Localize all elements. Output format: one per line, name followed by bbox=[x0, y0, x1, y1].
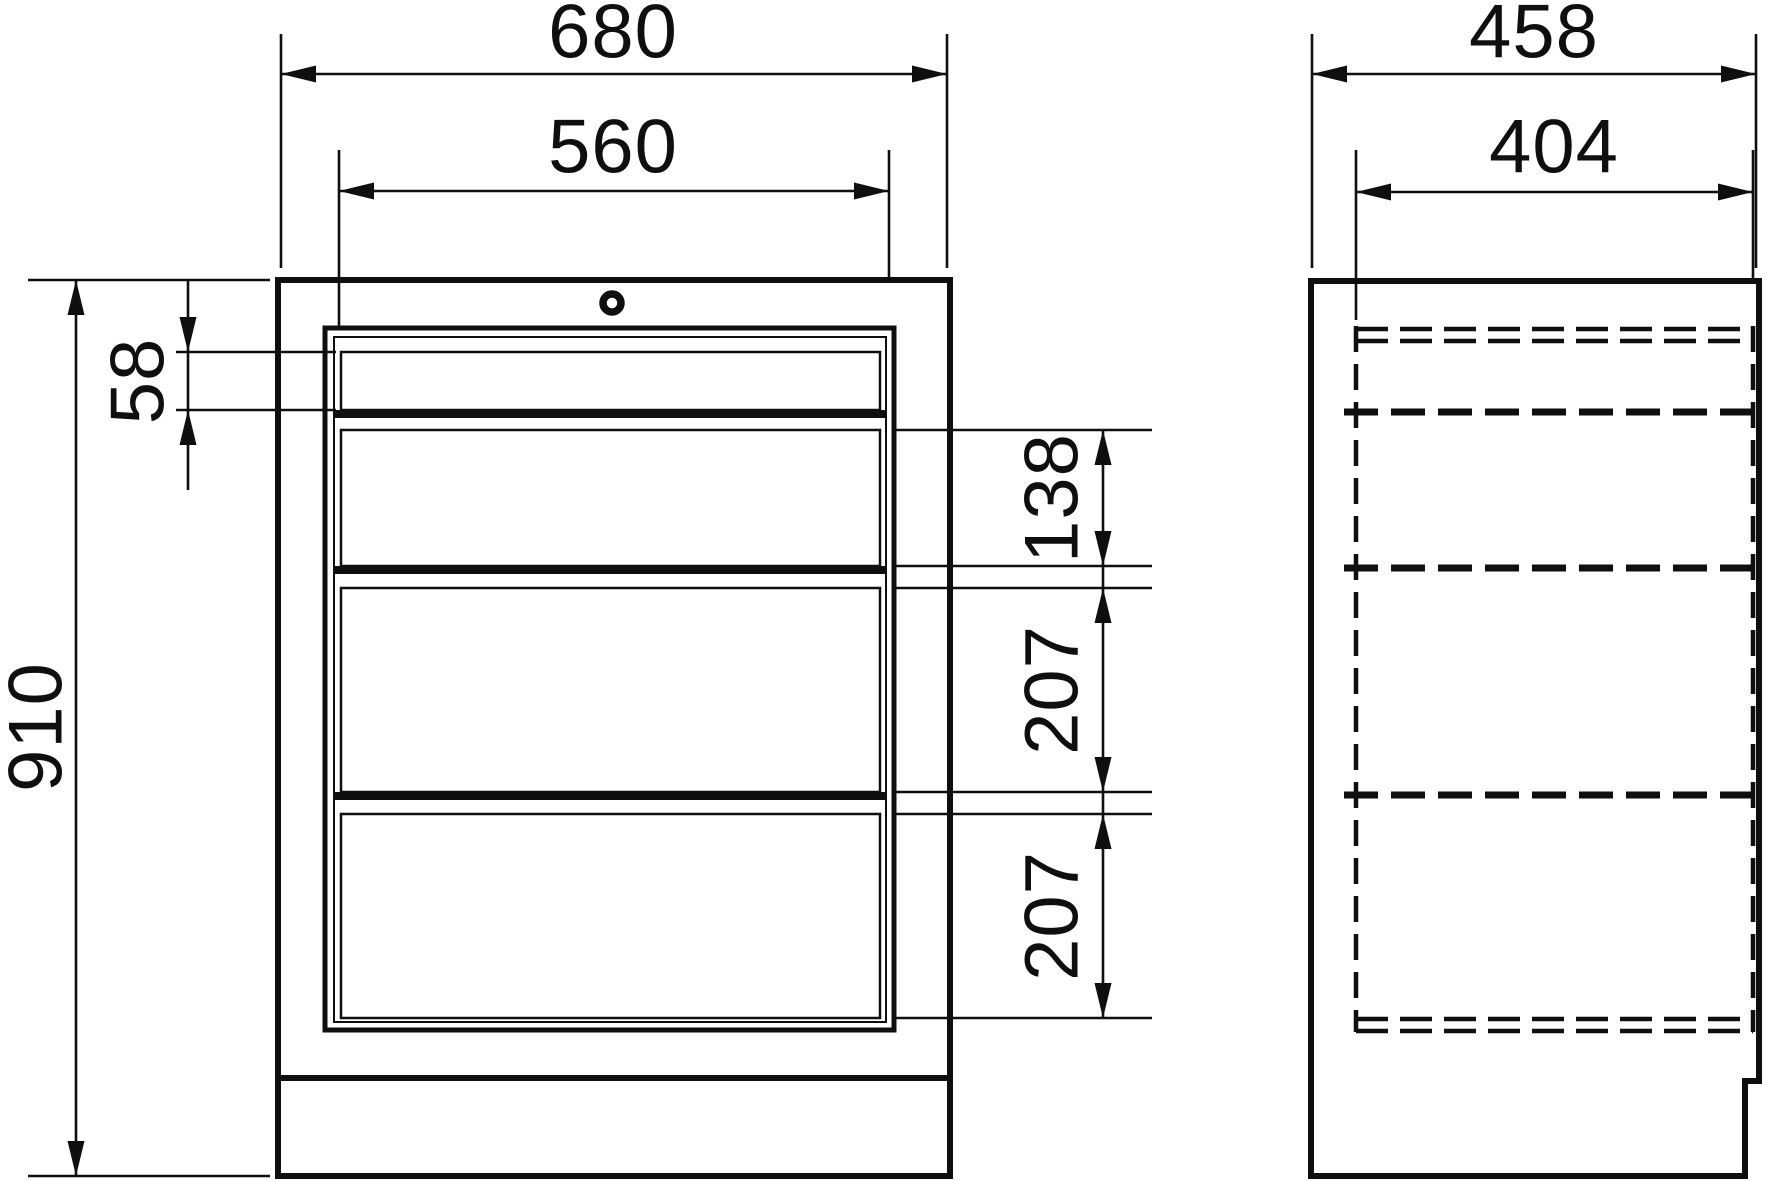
dim-inner-depth: 404 bbox=[1356, 104, 1753, 320]
dim-label-outer-height: 910 bbox=[0, 662, 78, 792]
technical-drawing-page: 680 560 910 58 bbox=[0, 0, 1767, 1181]
dim-drawer-heights: 138 207 207 bbox=[892, 430, 1152, 1018]
drawer-frame-outer bbox=[325, 328, 894, 1030]
dim-label-outer-width: 680 bbox=[548, 0, 678, 74]
drawer-rail-3 bbox=[335, 792, 885, 800]
arrowhead-left-icon bbox=[1312, 66, 1347, 83]
arrowhead-up-icon bbox=[180, 410, 197, 445]
dim-label-drawer2-height: 138 bbox=[1009, 433, 1094, 563]
arrowhead-up-icon bbox=[68, 280, 85, 315]
dim-label-drawer1-height: 58 bbox=[95, 338, 180, 425]
dim-label-drawer3-height: 207 bbox=[1009, 625, 1094, 755]
arrowhead-down-icon bbox=[1095, 757, 1112, 792]
drawer-rail-2 bbox=[335, 566, 885, 574]
arrowhead-left-icon bbox=[339, 183, 374, 200]
arrowhead-left-icon bbox=[1356, 184, 1391, 201]
arrowhead-up-icon bbox=[1095, 430, 1112, 465]
drawer-4-front bbox=[341, 814, 880, 1018]
arrowhead-down-icon bbox=[1095, 983, 1112, 1018]
lock-cylinder-icon bbox=[603, 294, 621, 312]
arrowhead-up-icon bbox=[1095, 814, 1112, 849]
drawer-1-front bbox=[341, 352, 880, 410]
dim-label-drawer-width: 560 bbox=[548, 104, 678, 189]
drawer-2-front bbox=[341, 430, 880, 566]
front-view bbox=[278, 280, 950, 1176]
arrowhead-down-icon bbox=[180, 317, 197, 352]
arrowhead-left-icon bbox=[281, 66, 316, 83]
drawer-3-front bbox=[341, 588, 880, 792]
cabinet-dimension-drawing: 680 560 910 58 bbox=[0, 0, 1767, 1181]
arrowhead-down-icon bbox=[68, 1141, 85, 1176]
arrowhead-right-icon bbox=[854, 183, 889, 200]
side-hidden-drawer-cage bbox=[1344, 326, 1753, 1032]
drawer-rail-1 bbox=[335, 410, 885, 418]
side-view bbox=[1311, 281, 1759, 1176]
dim-label-drawer4-height: 207 bbox=[1009, 851, 1094, 981]
arrowhead-right-icon bbox=[912, 66, 947, 83]
arrowhead-up-icon bbox=[1095, 588, 1112, 623]
dim-label-inner-depth: 404 bbox=[1489, 104, 1619, 189]
arrowhead-right-icon bbox=[1718, 184, 1753, 201]
dim-label-outer-depth: 458 bbox=[1469, 0, 1599, 74]
dim-drawer1-height: 58 bbox=[95, 281, 336, 490]
drawer-frame-inner bbox=[334, 337, 886, 1022]
arrowhead-down-icon bbox=[1095, 531, 1112, 566]
arrowhead-right-icon bbox=[1721, 66, 1756, 83]
